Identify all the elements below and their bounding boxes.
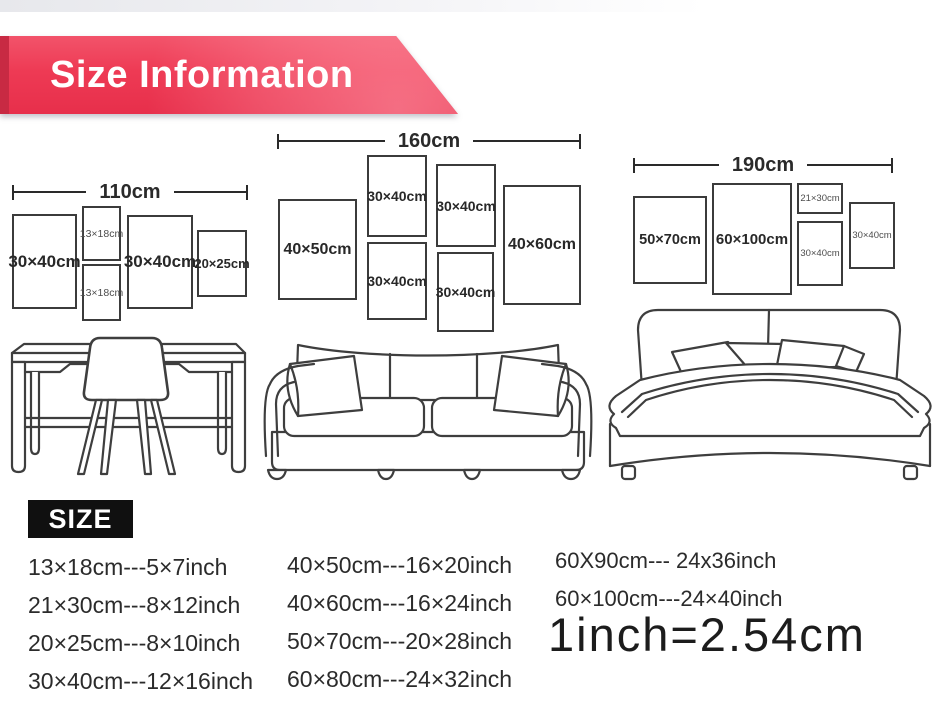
frame-40x50: 40×50cm <box>278 199 357 300</box>
dimension-line <box>807 164 891 166</box>
frame-21x30: 21×30cm <box>797 183 843 214</box>
conversion-column-2: 40×50cm---16×20inch 40×60cm---16×24inch … <box>287 546 512 698</box>
dimension-label: 110cm <box>86 181 173 204</box>
width-dimension-desk: 110cm <box>12 183 248 201</box>
frame-20x25: 20×25cm <box>197 230 247 297</box>
size-heading: SIZE <box>28 500 133 538</box>
dimension-line <box>14 191 86 193</box>
frame-30x40: 30×40cm <box>797 221 843 286</box>
top-edge-strip <box>0 0 705 12</box>
conversion-row: 30×40cm---12×16inch <box>28 662 253 700</box>
dimension-line <box>279 140 385 142</box>
conversion-row: 40×50cm---16×20inch <box>287 546 512 584</box>
dimension-line <box>473 140 579 142</box>
conversion-row: 20×25cm---8×10inch <box>28 624 253 662</box>
width-dimension-sofa: 160cm <box>277 132 581 150</box>
frame-50x70: 50×70cm <box>633 196 707 284</box>
frame-13x18: 13×18cm <box>82 206 121 261</box>
dimension-tick <box>246 185 248 200</box>
dimension-label: 190cm <box>719 154 807 177</box>
frame-30x40: 30×40cm <box>437 252 494 332</box>
dimension-line <box>174 191 246 193</box>
frame-30x40: 30×40cm <box>849 202 895 269</box>
size-information-infographic: Size Information 110cm 30×40cm 13×18cm 1… <box>0 0 940 718</box>
frame-13x18: 13×18cm <box>82 264 121 321</box>
banner-wrap: Size Information <box>0 18 470 100</box>
size-information-banner: Size Information <box>0 36 458 114</box>
frame-30x40: 30×40cm <box>127 215 193 309</box>
frame-30x40: 30×40cm <box>436 164 496 247</box>
sofa-illustration <box>256 336 600 482</box>
dimension-tick <box>579 134 581 149</box>
conversion-column-1: 13×18cm---5×7inch 21×30cm---8×12inch 20×… <box>28 548 253 700</box>
frame-30x40: 30×40cm <box>12 214 77 309</box>
conversion-row: 21×30cm---8×12inch <box>28 586 253 624</box>
width-dimension-bed: 190cm <box>633 156 893 174</box>
frame-30x40: 30×40cm <box>367 242 427 320</box>
bed-illustration <box>602 304 938 482</box>
frame-30x40: 30×40cm <box>367 155 427 237</box>
frame-40x60: 40×60cm <box>503 185 581 305</box>
banner-title: Size Information <box>50 36 354 114</box>
conversion-row: 13×18cm---5×7inch <box>28 548 253 586</box>
dimension-tick <box>891 158 893 173</box>
conversion-row: 60X90cm--- 24x36inch <box>555 542 782 580</box>
conversion-row: 50×70cm---20×28inch <box>287 622 512 660</box>
inch-cm-conversion-note: 1inch=2.54cm <box>548 607 866 662</box>
dimension-label: 160cm <box>385 130 473 153</box>
dimension-line <box>635 164 719 166</box>
conversion-row: 40×60cm---16×24inch <box>287 584 512 622</box>
desk-and-chair-illustration <box>4 336 254 480</box>
conversion-row: 60×80cm---24×32inch <box>287 660 512 698</box>
frame-60x100: 60×100cm <box>712 183 792 295</box>
